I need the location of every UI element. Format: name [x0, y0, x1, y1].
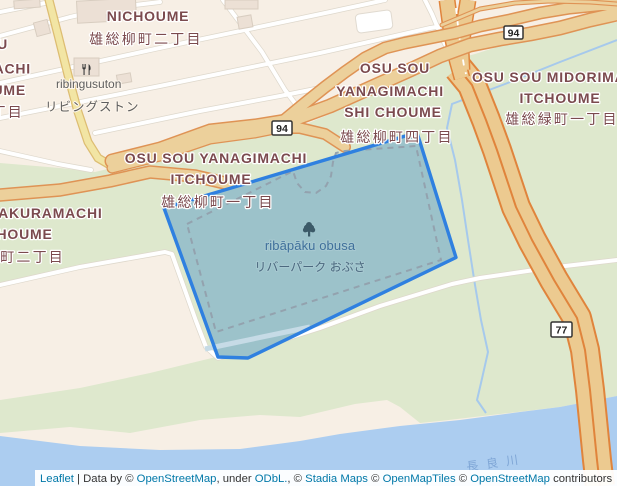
- svg-text:リバーパーク おぶさ: リバーパーク おぶさ: [254, 260, 365, 274]
- svg-text:丁目: 丁目: [0, 104, 24, 120]
- svg-text:桜町二丁目: 桜町二丁目: [0, 249, 65, 265]
- svg-text:UME: UME: [0, 82, 26, 98]
- svg-text:リビングストン: リビングストン: [45, 100, 140, 114]
- svg-text:雄総柳町二丁目: 雄総柳町二丁目: [89, 31, 202, 47]
- svg-text:NICHOUME: NICHOUME: [107, 8, 190, 24]
- svg-text:77: 77: [556, 325, 568, 337]
- svg-text:雄総緑町一丁目: 雄総緑町一丁目: [505, 111, 617, 127]
- svg-text:94: 94: [276, 123, 288, 135]
- svg-text:YANAGIMACHI: YANAGIMACHI: [336, 83, 444, 99]
- svg-text:ribāpāku obusa: ribāpāku obusa: [265, 238, 356, 253]
- svg-text:雄総柳町一丁目: 雄総柳町一丁目: [161, 194, 274, 210]
- svg-text:U: U: [0, 36, 8, 52]
- svg-text:94: 94: [508, 28, 520, 40]
- svg-text:雄総柳町四丁目: 雄総柳町四丁目: [340, 129, 453, 145]
- svg-text:OSU SOU MIDORIMACHI: OSU SOU MIDORIMACHI: [472, 69, 617, 85]
- svg-text:SHI CHOUME: SHI CHOUME: [344, 104, 441, 120]
- svg-text:Leaflet | Data by © OpenStreet: Leaflet | Data by © OpenStreetMap, under…: [40, 473, 612, 485]
- svg-text:ITCHOUME: ITCHOUME: [519, 90, 600, 106]
- svg-text:OSU SOU: OSU SOU: [360, 60, 430, 76]
- svg-text:OSU SOU YANAGIMACHI: OSU SOU YANAGIMACHI: [125, 150, 307, 166]
- svg-text:ITCHOUME: ITCHOUME: [170, 171, 251, 187]
- svg-text:ribingusuton: ribingusuton: [56, 77, 121, 91]
- svg-text:ACHI: ACHI: [0, 61, 31, 77]
- svg-text:SAKURAMACHI: SAKURAMACHI: [0, 205, 103, 221]
- svg-text:NICHOUME: NICHOUME: [0, 226, 53, 242]
